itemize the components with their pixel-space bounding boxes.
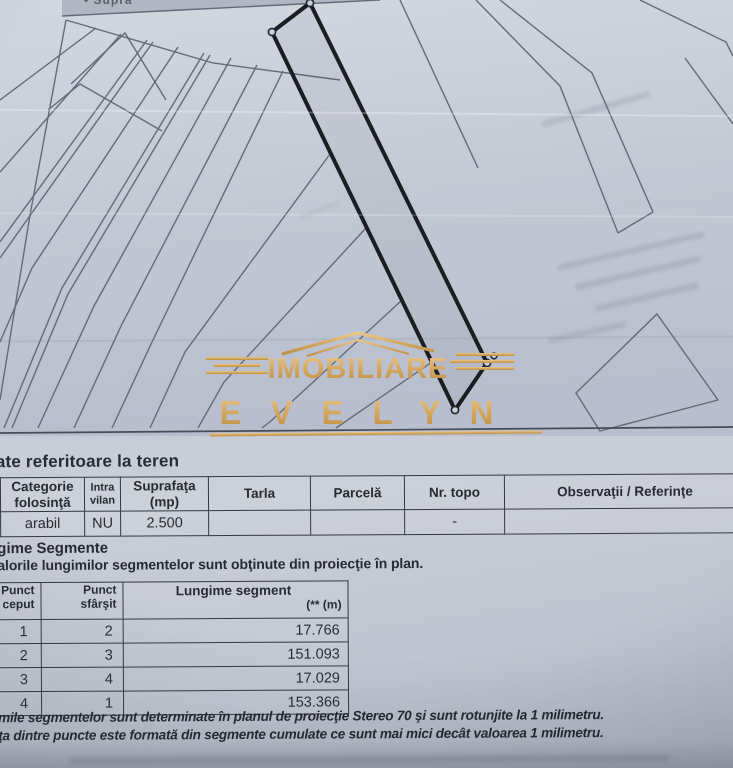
teren-section-title: ate referitoare la teren [0,451,179,472]
cell-length: 17.766 [123,618,348,643]
segment-row: 1 2 17.766 [0,618,348,644]
cell-categorie: arabil [1,511,85,536]
segment-row: 3 4 17.029 [0,666,348,692]
cell-suprafata: 2.500 [121,511,209,536]
segmente-table: Punct ceput Punct sfârşit Lungime segmen… [0,580,349,716]
col-punct-sfarsit: Punct sfârşit [41,582,123,619]
col-lungime-segment: Lungime segment (** (m) [123,581,348,619]
col-intravilan: Intra vilan [84,477,120,511]
cell-tarla [209,510,311,536]
col-nr-topo: Nr. topo [404,475,504,510]
cell-intravilan: NU [85,511,121,536]
teren-data-row: arabil NU 2.500 - [1,508,733,537]
cell-end: 2 [41,619,123,643]
cell-observatii [505,508,733,534]
cell-end: 3 [41,643,123,667]
col-punct-inceput: Punct ceput [0,582,41,619]
cell-nr-topo: - [405,509,505,535]
col-tarla: Tarla [208,476,310,511]
col-categorie: Categorie folosinţă [0,477,84,511]
cell-length: 151.093 [123,642,348,667]
cell-start: 3 [0,667,42,691]
segment-row: 2 3 151.093 [0,642,348,668]
segmente-section-title: gime Segmente [0,540,108,558]
teren-table: Categorie folosinţă Intra vilan Suprafaţ… [0,473,733,537]
segmente-subtitle: alorile lungimilor segmentelor sunt obţi… [0,555,423,573]
cell-start: 1 [0,619,41,643]
document-body: ate referitoare la teren Categorie folos… [0,0,733,768]
col-observatii: Observaţii / Referinţe [504,474,733,509]
cell-end: 4 [41,667,123,691]
cell-start: 2 [0,643,41,667]
document-photo: • Supra IMOBILIARE EVELYN at [0,0,733,768]
segmente-header-row: Punct ceput Punct sfârşit Lungime segmen… [0,581,348,620]
cell-parcela [311,510,405,535]
col-parcela: Parcelă [310,476,404,510]
cell-length: 17.029 [123,666,348,691]
teren-header-row: Categorie folosinţă Intra vilan Suprafaţ… [0,474,733,512]
col-suprafata: Suprafaţa (mp) [120,477,208,511]
footnote-1: mile segmentelor sunt determinate în pla… [0,707,604,725]
footnote-2: ţa dintre puncte este formată din segmen… [0,725,604,743]
